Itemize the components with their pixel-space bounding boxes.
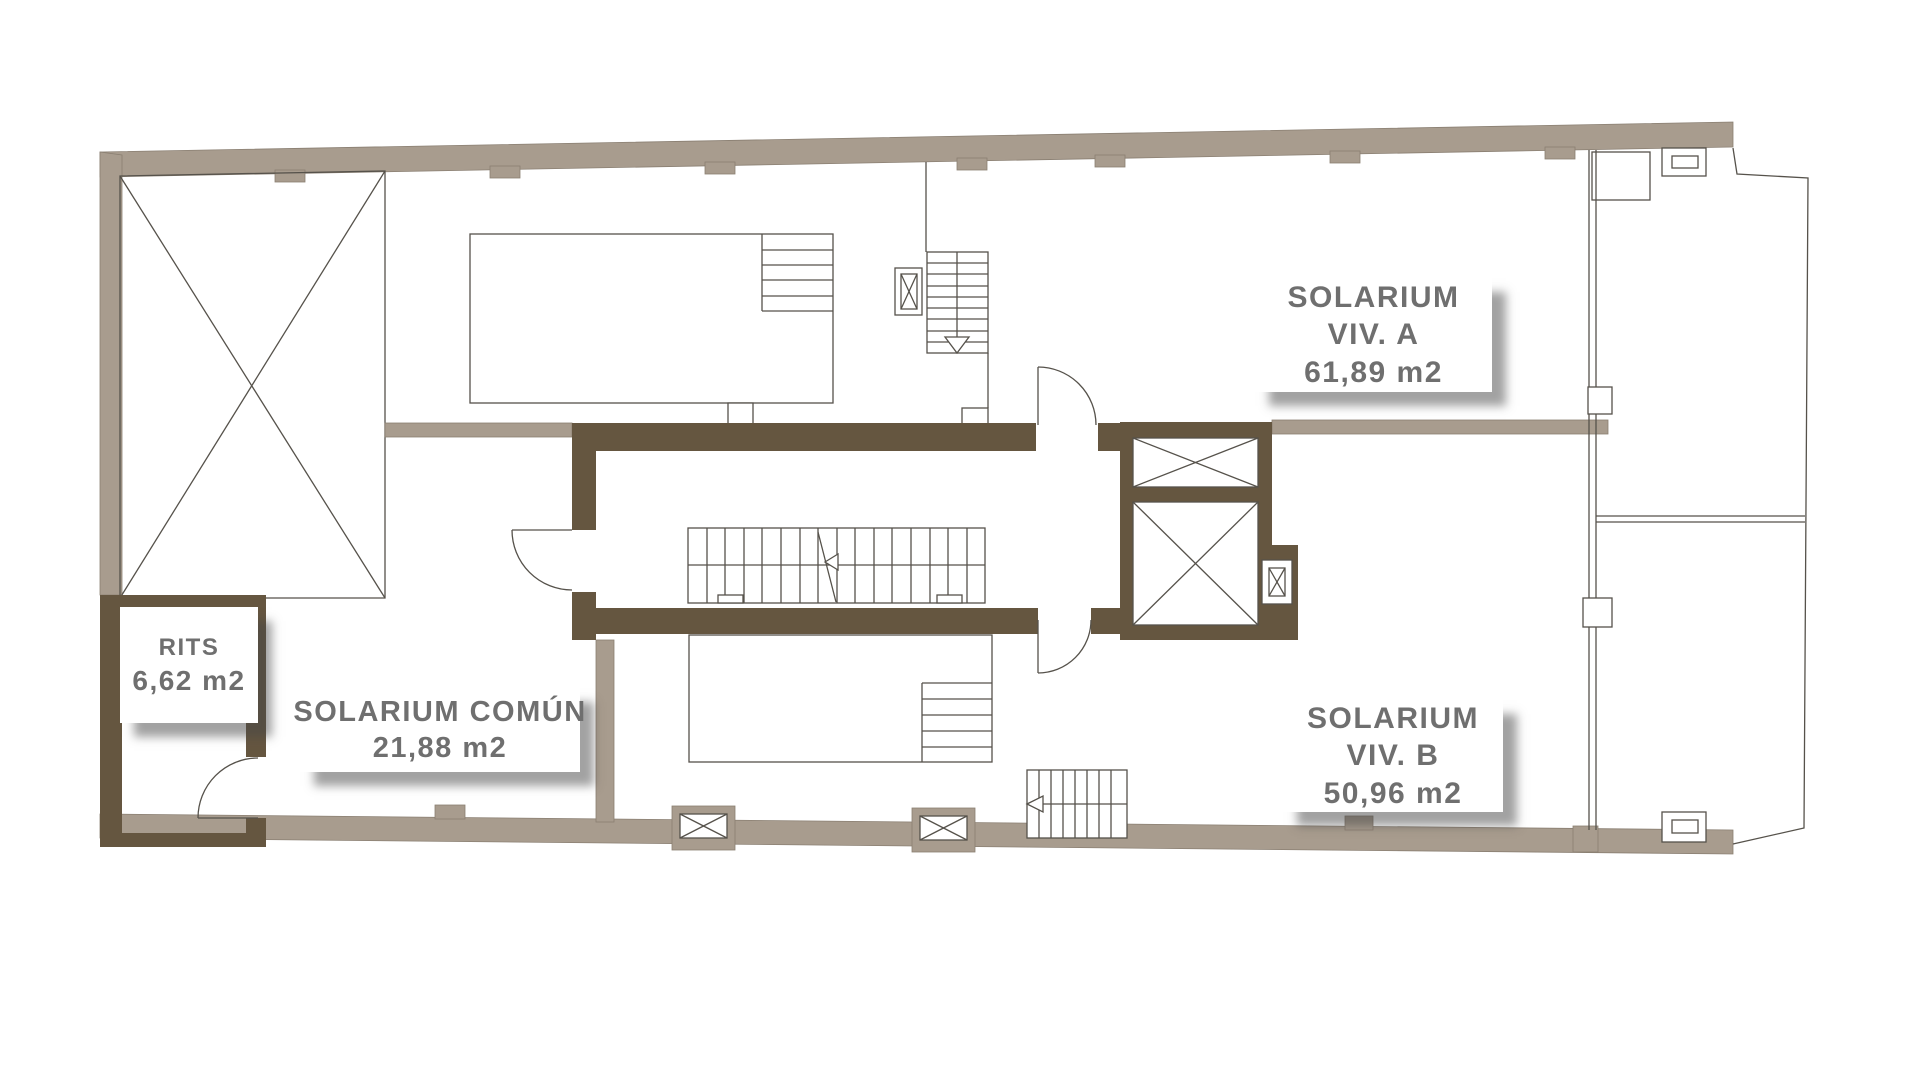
left-exterior-wall xyxy=(100,152,122,595)
label-rits: RITS 6,62 m2 xyxy=(120,607,258,723)
label-solarium-viv-b: SOLARIUM VIV. B 50,96 m2 xyxy=(1283,700,1503,812)
pool-a xyxy=(470,234,833,424)
room-area: 61,89 m2 xyxy=(1304,354,1443,392)
door-solarium-a xyxy=(1038,367,1096,425)
room-name: SOLARIUM xyxy=(1288,279,1460,317)
right-terrace xyxy=(1583,148,1808,844)
pool-a-ledge xyxy=(728,403,753,424)
divider-box-lower xyxy=(1583,598,1612,627)
label-solarium-comun: SOLARIUM COMÚN 21,88 m2 xyxy=(300,688,580,772)
room-area: 21,88 m2 xyxy=(373,730,508,766)
duct-x-top xyxy=(895,268,922,315)
room-name: SOLARIUM xyxy=(1307,700,1479,738)
partition-left xyxy=(385,423,572,437)
elevator-core xyxy=(1120,422,1298,640)
duct-x-elevator xyxy=(1262,560,1292,604)
room-name: SOLARIUM COMÚN xyxy=(293,694,586,730)
stair-bottom-right xyxy=(1027,770,1127,838)
door-solarium-b xyxy=(1038,620,1091,673)
stair-core-walls xyxy=(572,423,1136,640)
room-unit: VIV. B xyxy=(1347,737,1440,775)
door-solarium-comun xyxy=(512,530,572,590)
terrace-closet xyxy=(1592,152,1650,200)
access-stair-top xyxy=(895,162,988,424)
floor-plan-drawing xyxy=(0,0,1920,1080)
room-unit: VIV. A xyxy=(1328,316,1420,354)
top-exterior-wall xyxy=(100,122,1733,177)
void-cross-area xyxy=(120,171,385,598)
vent-box-bottom-right xyxy=(1662,812,1706,842)
room-name: RITS xyxy=(159,633,220,663)
main-staircase xyxy=(688,528,985,603)
floor-plan-canvas: SOLARIUM VIV. A 61,89 m2 SOLARIUM VIV. B… xyxy=(0,0,1920,1080)
pool-b xyxy=(689,635,992,762)
room-area: 6,62 m2 xyxy=(132,663,245,698)
shaft-upper-x xyxy=(1133,438,1258,487)
label-solarium-viv-a: SOLARIUM VIV. A 61,89 m2 xyxy=(1255,278,1492,392)
divider-comun-b xyxy=(596,640,614,822)
room-area: 50,96 m2 xyxy=(1324,775,1463,813)
door-rits xyxy=(198,758,258,818)
divider-box-upper xyxy=(1588,387,1612,414)
partition-right xyxy=(1272,420,1608,434)
elevator-shaft-x xyxy=(1133,502,1258,625)
vent-box-top-right xyxy=(1662,148,1706,176)
